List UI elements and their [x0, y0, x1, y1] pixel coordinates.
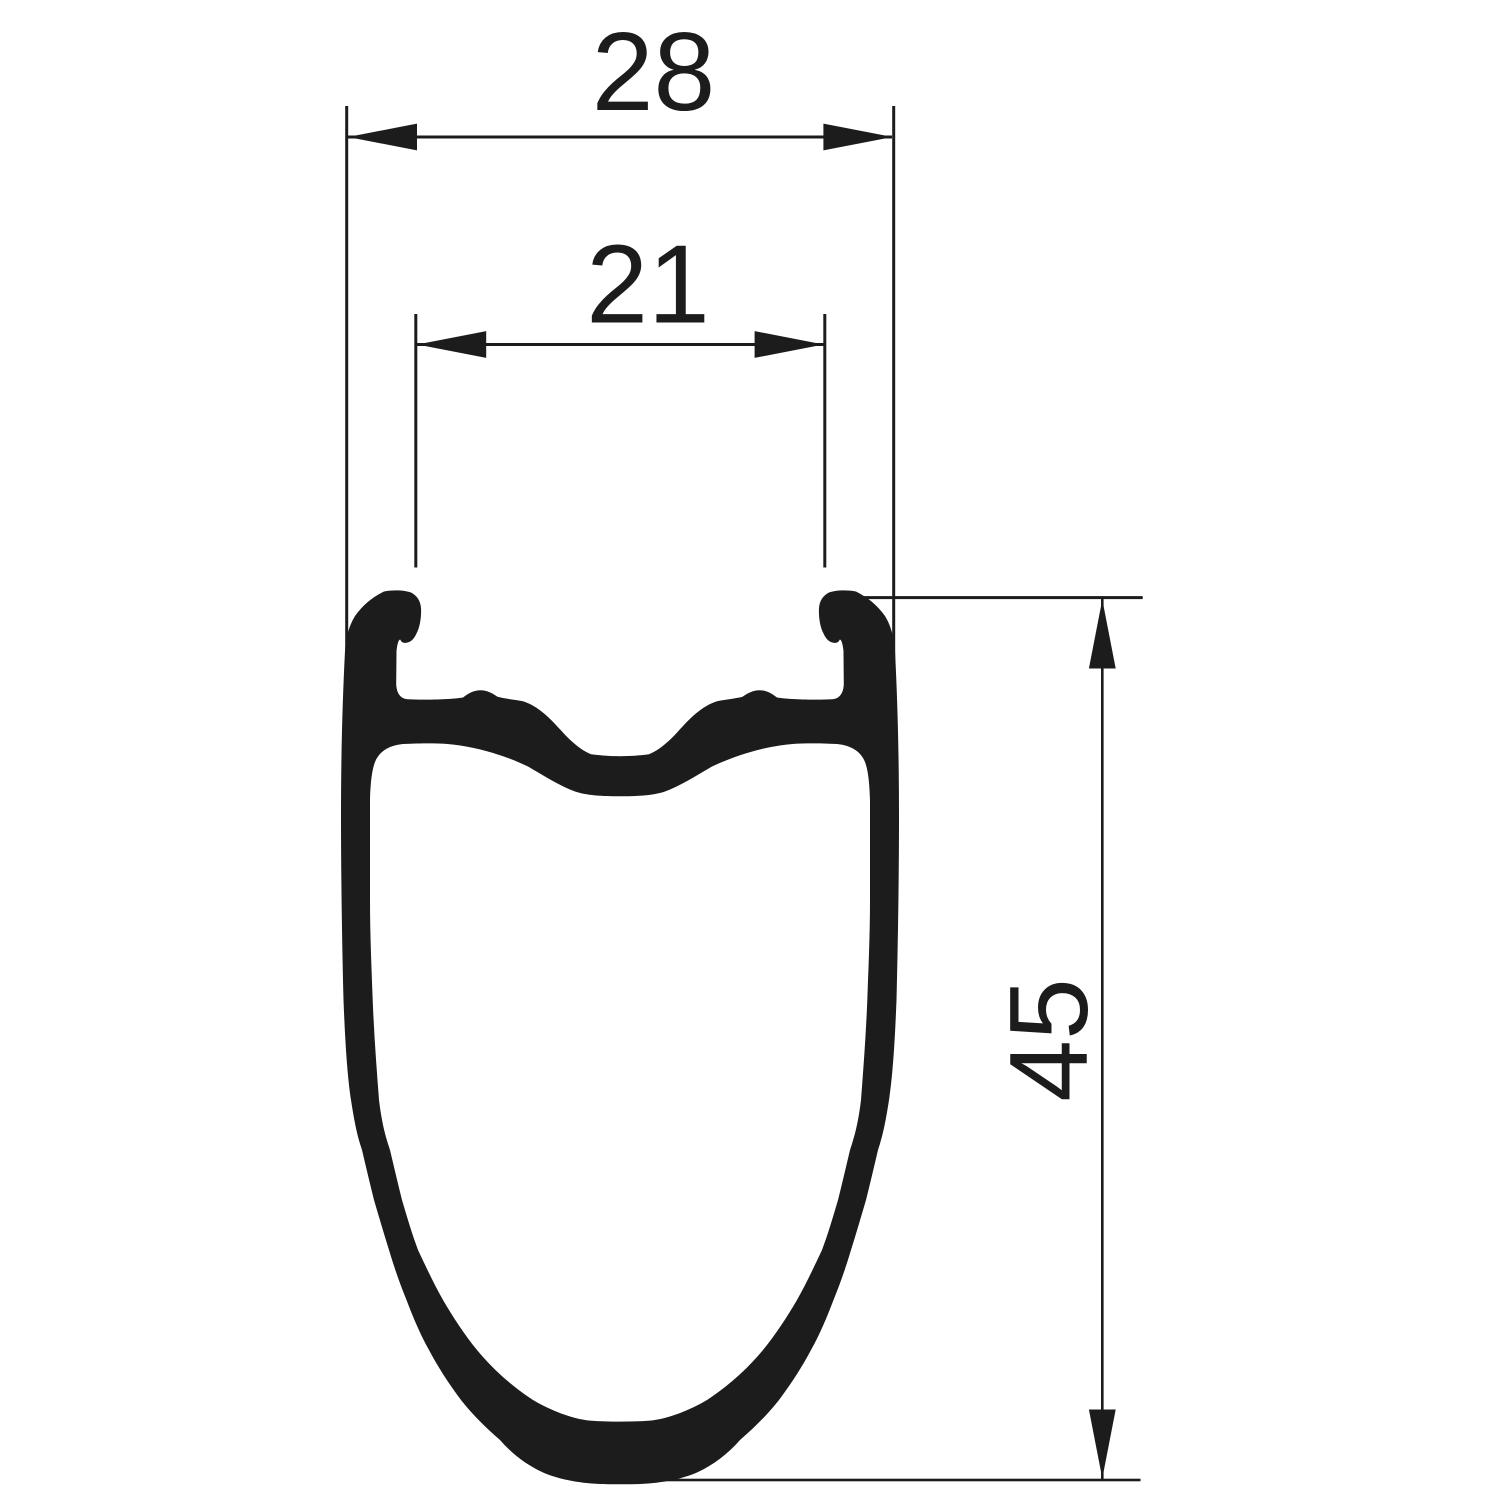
- svg-text:21: 21: [586, 223, 709, 347]
- svg-text:28: 28: [592, 10, 715, 134]
- svg-text:45: 45: [987, 978, 1111, 1101]
